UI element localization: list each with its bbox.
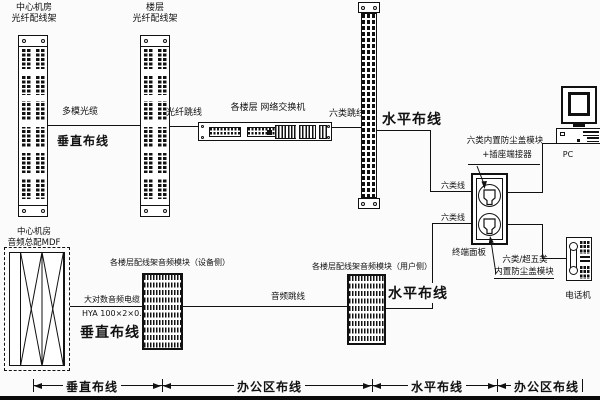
dimension-arrow-icon [34, 383, 42, 389]
phone-line-b [542, 224, 543, 259]
dimension-arrow-icon [373, 383, 381, 389]
outlet-jack-data [478, 184, 501, 207]
screw-icon [163, 209, 167, 213]
cat6-module-leader-underline [468, 164, 540, 165]
patch-panel-top-cap [358, 2, 380, 13]
screw-icon [163, 39, 167, 43]
phone-line-a [508, 224, 543, 225]
fiber-frame-1-modules-left [22, 49, 32, 203]
telephone-icon [566, 237, 592, 281]
dimension-arrow-icon [163, 383, 171, 389]
cat6-module-label-line2: +插座端接器 [478, 150, 536, 161]
phone-handset-earpiece [569, 242, 578, 251]
screw-icon [41, 209, 45, 213]
screw-icon [361, 6, 365, 10]
screw-icon [373, 6, 377, 10]
phone-display-bars [580, 256, 590, 264]
pc-label: PC [560, 149, 576, 160]
structured-cabling-diagram: 中心机房 光纤配线架 楼层 光纤配线架 多模光缆 垂直布线 光纤跳线 各楼层 网… [0, 0, 600, 400]
audio-mdf-label-line1: 中心机房 [2, 227, 66, 238]
switch-label: 各楼层 网络交换机 [228, 103, 308, 114]
phone-line-c [542, 258, 567, 259]
cat6-line-data-segment [430, 191, 472, 192]
pc-unit-drive [587, 137, 599, 142]
phone-handset-mouthpiece [569, 266, 578, 275]
fiber-frame-2-modules-left [144, 49, 154, 203]
audio-jumper-line [183, 306, 347, 307]
phone-keypad-bottom [580, 266, 590, 279]
pc-line-a [508, 192, 543, 193]
dimension-arrow-icon [363, 383, 371, 389]
switch-vent-1 [275, 125, 296, 139]
fiber-frame-2-top-cap [140, 35, 170, 47]
image-border-bottom [0, 396, 600, 400]
floor-fiber-frame-label-line2: 光纤配线架 [127, 14, 183, 25]
horizontal-run-data-a [377, 130, 431, 131]
dimension-label-workarea-2: 办公区布线 [511, 378, 582, 395]
dimension-arrow-icon [153, 383, 161, 389]
cat6-line-data-label: 六类线 [438, 180, 468, 191]
fiber-frame-1-bottom-cap [18, 205, 48, 217]
screw-icon [41, 39, 45, 43]
cat6-line-voice-segment [432, 223, 472, 224]
terminal-faceplate-label: 终端面板 [450, 248, 488, 259]
multimode-cable-label: 多模光缆 [58, 107, 102, 118]
screw-icon [22, 39, 26, 43]
screw-icon [373, 202, 377, 206]
fiber-frame-2-modules-right [158, 49, 168, 203]
dimension-arrow-icon [498, 383, 506, 389]
central-fiber-frame-label: 中心机房 光纤配线架 [6, 3, 62, 25]
cat6-module-label-line1: 六类内置防尘盖模块 [462, 136, 548, 147]
switch-port-block-1 [209, 127, 241, 137]
zone-horizontal-bottom-label: 水平布线 [388, 283, 448, 303]
pc-line-b [542, 143, 543, 193]
audio-device-side-block [142, 273, 183, 350]
horizontal-run-data-b [430, 130, 431, 191]
screw-icon [144, 209, 148, 213]
pc-screen [568, 92, 590, 116]
switch-vent-3 [319, 125, 327, 139]
screw-icon [327, 125, 330, 128]
switch-led-square [267, 130, 272, 135]
zone-vertical-top-label: 垂直布线 [57, 132, 109, 149]
audio-user-side-label: 各楼层配线架音频模块（用户侧） [310, 261, 434, 272]
screw-icon [201, 125, 204, 128]
pc-monitor-stand [573, 124, 585, 127]
big-pair-cable-label: 大对数音频电缆 [82, 294, 142, 305]
big-pair-cable-spec: HYA 100×2×0.5 [82, 308, 142, 319]
network-switch [198, 122, 332, 141]
pc-unit-vents [583, 131, 599, 136]
screw-icon [22, 209, 26, 213]
switch-vent-2 [299, 125, 316, 139]
floor-fiber-frame-label-line1: 楼层 [127, 3, 183, 14]
screw-icon [201, 136, 204, 139]
central-fiber-frame-label-line2: 光纤配线架 [6, 14, 62, 25]
audio-jumper-label: 音频跳线 [268, 292, 308, 303]
multimode-cable-line [48, 125, 140, 126]
outlet-jack-voice [478, 213, 501, 236]
telephone-label: 电话机 [562, 291, 594, 302]
phone-keypad-top [580, 241, 590, 254]
dimension-tick [582, 379, 583, 392]
audio-user-side-block [347, 274, 386, 345]
dimension-label-vertical: 垂直布线 [63, 378, 121, 395]
fiber-jumper-label: 光纤跳线 [162, 108, 206, 119]
screw-icon [361, 202, 365, 206]
cat6-line-voice-label: 六类线 [438, 212, 468, 223]
fiber-frame-1-modules-right [36, 49, 46, 203]
screw-icon [144, 39, 148, 43]
dimension-arrow-icon [488, 383, 496, 389]
central-fiber-frame-label-line1: 中心机房 [6, 3, 62, 14]
horizontal-run-voice-a [386, 308, 433, 309]
dimension-label-horizontal: 水平布线 [408, 378, 466, 395]
fiber-frame-2-bottom-cap [140, 205, 170, 217]
pc-unit-button [560, 132, 565, 136]
audio-device-side-label: 各楼层配线架音频模块（设备侧） [108, 257, 232, 268]
voice-module-label-line2: 内置防尘盖模块 [494, 267, 554, 279]
fiber-frame-1-top-cap [18, 35, 48, 47]
floor-fiber-frame-label: 楼层 光纤配线架 [127, 3, 183, 25]
zone-horizontal-top-label: 水平布线 [382, 109, 442, 129]
audio-mdf-label: 中心机房 音频总配MDF [2, 227, 66, 249]
cat6-jumper-line [332, 127, 362, 128]
patch-panel-bottom-cap [358, 198, 380, 209]
big-pair-cable-line [70, 306, 142, 307]
zone-vertical-bottom-label: 垂直布线 [80, 322, 140, 342]
fiber-jumper-line [170, 126, 198, 127]
audio-mdf-box [9, 252, 65, 366]
patch-panel-body [361, 13, 377, 198]
pc-monitor-icon [561, 86, 597, 124]
screw-icon [327, 136, 330, 139]
pc-system-unit-icon [556, 128, 600, 144]
dimension-label-workarea-1: 办公区布线 [234, 378, 305, 395]
pc-unit-led [577, 139, 580, 142]
